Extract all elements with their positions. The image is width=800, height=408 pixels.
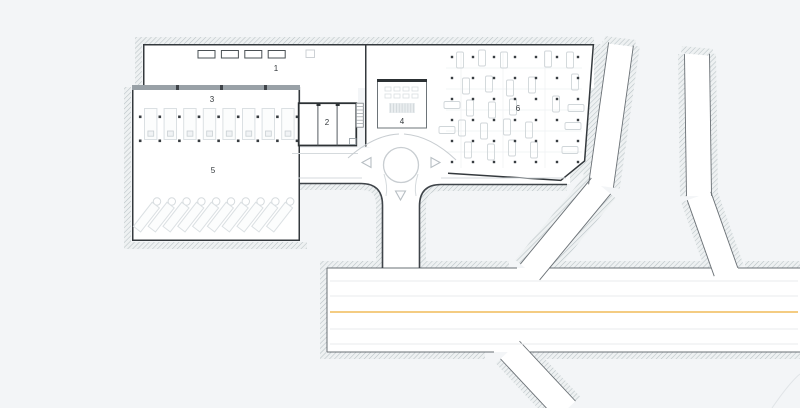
column-dot [139, 140, 142, 143]
wheel-stop [226, 131, 232, 136]
column-dot [577, 119, 579, 121]
column-dot [556, 77, 558, 79]
column-dot [577, 140, 579, 142]
site-plan-page: 1 2 3 4 5 6 [0, 0, 800, 408]
column-dot [472, 161, 474, 163]
column-dot [514, 119, 516, 121]
column-dot [556, 56, 558, 58]
column-dot [535, 98, 537, 100]
column-dot [276, 116, 279, 119]
column-dot [514, 98, 516, 100]
column-dot [493, 56, 495, 58]
column-dot [178, 140, 181, 143]
column-dot [159, 116, 162, 119]
hatch-band-bottom [124, 242, 307, 249]
column-dot [556, 140, 558, 142]
wall-joint-mark [176, 85, 179, 90]
zone-label-6: 6 [516, 105, 520, 113]
column-dot [514, 161, 516, 163]
column-dot [514, 56, 516, 58]
column-dot [451, 119, 453, 121]
zone-label-2: 2 [325, 119, 329, 127]
skylight [221, 51, 238, 59]
column-dot [514, 77, 516, 79]
column-dot [217, 140, 220, 143]
site-plan-drawing [0, 0, 800, 408]
zone-label-4: 4 [400, 118, 404, 126]
column-dot [577, 98, 579, 100]
hatch-band-top [135, 37, 594, 44]
column-dot [514, 140, 516, 142]
column-dot [577, 161, 579, 163]
wheel-stop [285, 131, 291, 136]
zone-label-5: 5 [211, 167, 215, 175]
block-2-door-mark [336, 103, 340, 106]
hatch-band-main-bottom [327, 352, 485, 359]
column-dot [217, 116, 220, 119]
column-dot [257, 140, 260, 143]
column-dot [535, 161, 537, 163]
column-dot [493, 161, 495, 163]
column-dot [535, 56, 537, 58]
column-dot [472, 140, 474, 142]
column-dot [451, 98, 453, 100]
wheel-stop [266, 131, 272, 136]
column-dot [296, 140, 299, 143]
column-dot [296, 116, 299, 119]
ramp-road-b-surface [685, 54, 712, 196]
hatch-band-left-lower [124, 87, 131, 249]
wall-joint-mark [264, 85, 267, 90]
column-dot [556, 98, 558, 100]
column-dot [577, 77, 579, 79]
column-dot [493, 140, 495, 142]
hatch-band-main-west-end [320, 261, 327, 359]
wheel-stop [187, 131, 193, 136]
zone-label-3: 3 [210, 96, 214, 104]
hatch-band-left-upper [135, 44, 142, 87]
column-dot [493, 119, 495, 121]
column-dot [472, 98, 474, 100]
column-dot [178, 116, 181, 119]
column-dot [451, 161, 453, 163]
column-dot [493, 77, 495, 79]
column-dot [276, 140, 279, 143]
column-dot [139, 116, 142, 119]
column-dot [493, 98, 495, 100]
column-dot [556, 161, 558, 163]
hatch-band-main-bottom [539, 352, 800, 359]
wall-joint-mark [220, 85, 223, 90]
column-dot [198, 116, 201, 119]
column-dot [451, 56, 453, 58]
column-dot [535, 119, 537, 121]
block-2-door-mark [317, 103, 321, 106]
column-dot [159, 140, 162, 143]
column-dot [535, 140, 537, 142]
hatch-band-main-top [558, 261, 704, 268]
skylight [198, 51, 215, 59]
column-dot [257, 116, 260, 119]
column-dot [472, 119, 474, 121]
hatch-band-main-top [745, 261, 800, 268]
column-dot [535, 77, 537, 79]
wheel-stop [207, 131, 213, 136]
skylight [245, 51, 262, 59]
wheel-stop [148, 131, 154, 136]
skylight [268, 51, 285, 59]
zone-label-1: 1 [274, 65, 278, 73]
column-dot [472, 56, 474, 58]
column-dot [198, 140, 201, 143]
column-dot [472, 77, 474, 79]
column-dot [556, 119, 558, 121]
wheel-stop [168, 131, 174, 136]
column-dot [451, 140, 453, 142]
column-dot [237, 116, 240, 119]
wheel-stop [246, 131, 252, 136]
column-dot [451, 77, 453, 79]
column-dot [237, 140, 240, 143]
column-dot [577, 56, 579, 58]
